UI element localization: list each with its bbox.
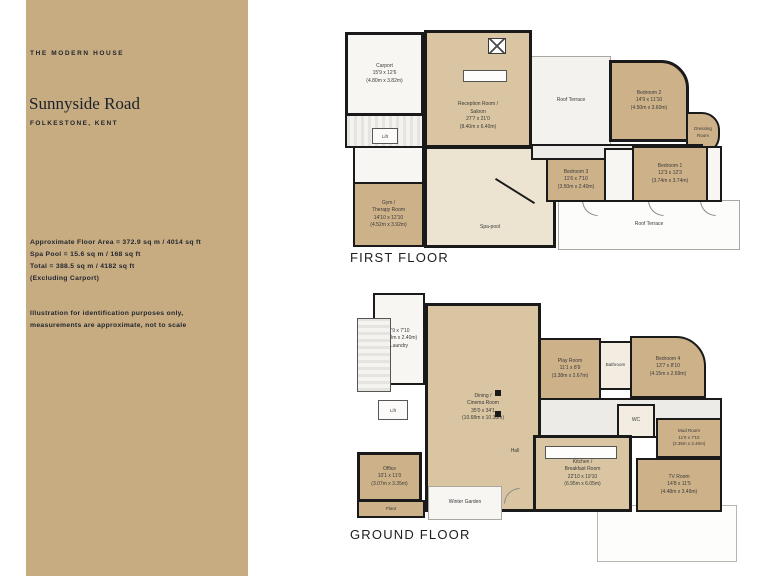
wardrobe-strip [706,146,722,202]
info-sidebar: THE MODERN HOUSE Sunnyside Road FOLKESTO… [26,0,248,576]
lift-first-floor: Lift [372,128,398,144]
room-spa-pool: Spa-pool [424,146,556,248]
kitchen-island [463,70,507,82]
room-office: Office 10'1 x 11'0 (3.07m x 3.35m) [357,452,422,502]
brand-name: THE MODERN HOUSE [30,50,124,57]
area-line: Total = 388.5 sq m / 4182 sq ft [30,263,135,270]
first-floor-caption: FIRST FLOOR [350,250,449,265]
kitchen-counter [545,446,617,459]
area-line: Spa Pool = 15.6 sq m / 168 sq ft [30,251,141,258]
first-floor-bathroom [353,146,424,184]
area-line: (Excluding Carport) [30,275,99,282]
room-bedroom-2: Bedroom 2 14'9 x 11'10 (4.50m x 3.60m) [609,60,689,142]
ground-floor-caption: GROUND FLOOR [350,527,471,542]
floorplan-page: THE MODERN HOUSE Sunnyside Road FOLKESTO… [0,0,768,576]
room-tv-room: TV Room 14'8 x 11'5 (4.48m x 3.49m) [636,458,722,512]
room-bedroom-1: Bedroom 1 12'3 x 12'3 (3.74m x 3.74m) [632,146,708,202]
room-reception-saloon: Reception Room / Saloon 27'7 x 21'0 (8.4… [424,30,532,148]
room-plant: Plant [357,500,425,518]
room-winter-garden: Winter Garden [428,486,502,520]
hall-label: Hall [500,448,530,454]
room-gym-therapy: Gym / Therapy Room 14'10 x 12'10 (4.52m … [353,182,424,247]
disclaimer-line: measurements are approximate, not to sca… [30,322,187,329]
pillar [495,390,501,396]
room-dining-cinema: Dining / Cinema Room 35'0 x 34'1 (10.68m… [425,303,541,512]
roof-terrace-top: Roof Terrace [531,56,611,146]
lift-ground-floor: Lift [378,400,408,420]
ground-floor-stairs [357,318,391,392]
room-wc: WC [617,404,655,438]
terrace-outline [597,505,737,562]
vent-icon [488,38,506,54]
room-bedroom-4: Bedroom 4 13'7 x 8'10 (4.15m x 2.69m) [630,336,706,398]
area-line: Approximate Floor Area = 372.9 sq m / 40… [30,239,201,246]
room-bathroom: Bathroom [599,341,632,390]
room-carport: Carport 15'9 x 12'6 (4.80m x 3.82m) [345,32,424,116]
room-mud-room: Mud Room 11'0 x 7'10 (3.35m x 2.40m) [656,418,722,458]
property-title: Sunnyside Road [29,94,140,114]
pillar [495,411,501,417]
room-bedroom-3: Bedroom 3 11'6 x 7'10 (3.50m x 2.40m) [546,158,606,202]
ensuite-bathroom [604,148,634,202]
disclaimer-line: Illustration for identification purposes… [30,310,183,317]
room-play-room: Play Room 11'1 x 8'9 (3.38m x 2.67m) [539,338,601,400]
property-location: FOLKESTONE, KENT [30,120,118,127]
